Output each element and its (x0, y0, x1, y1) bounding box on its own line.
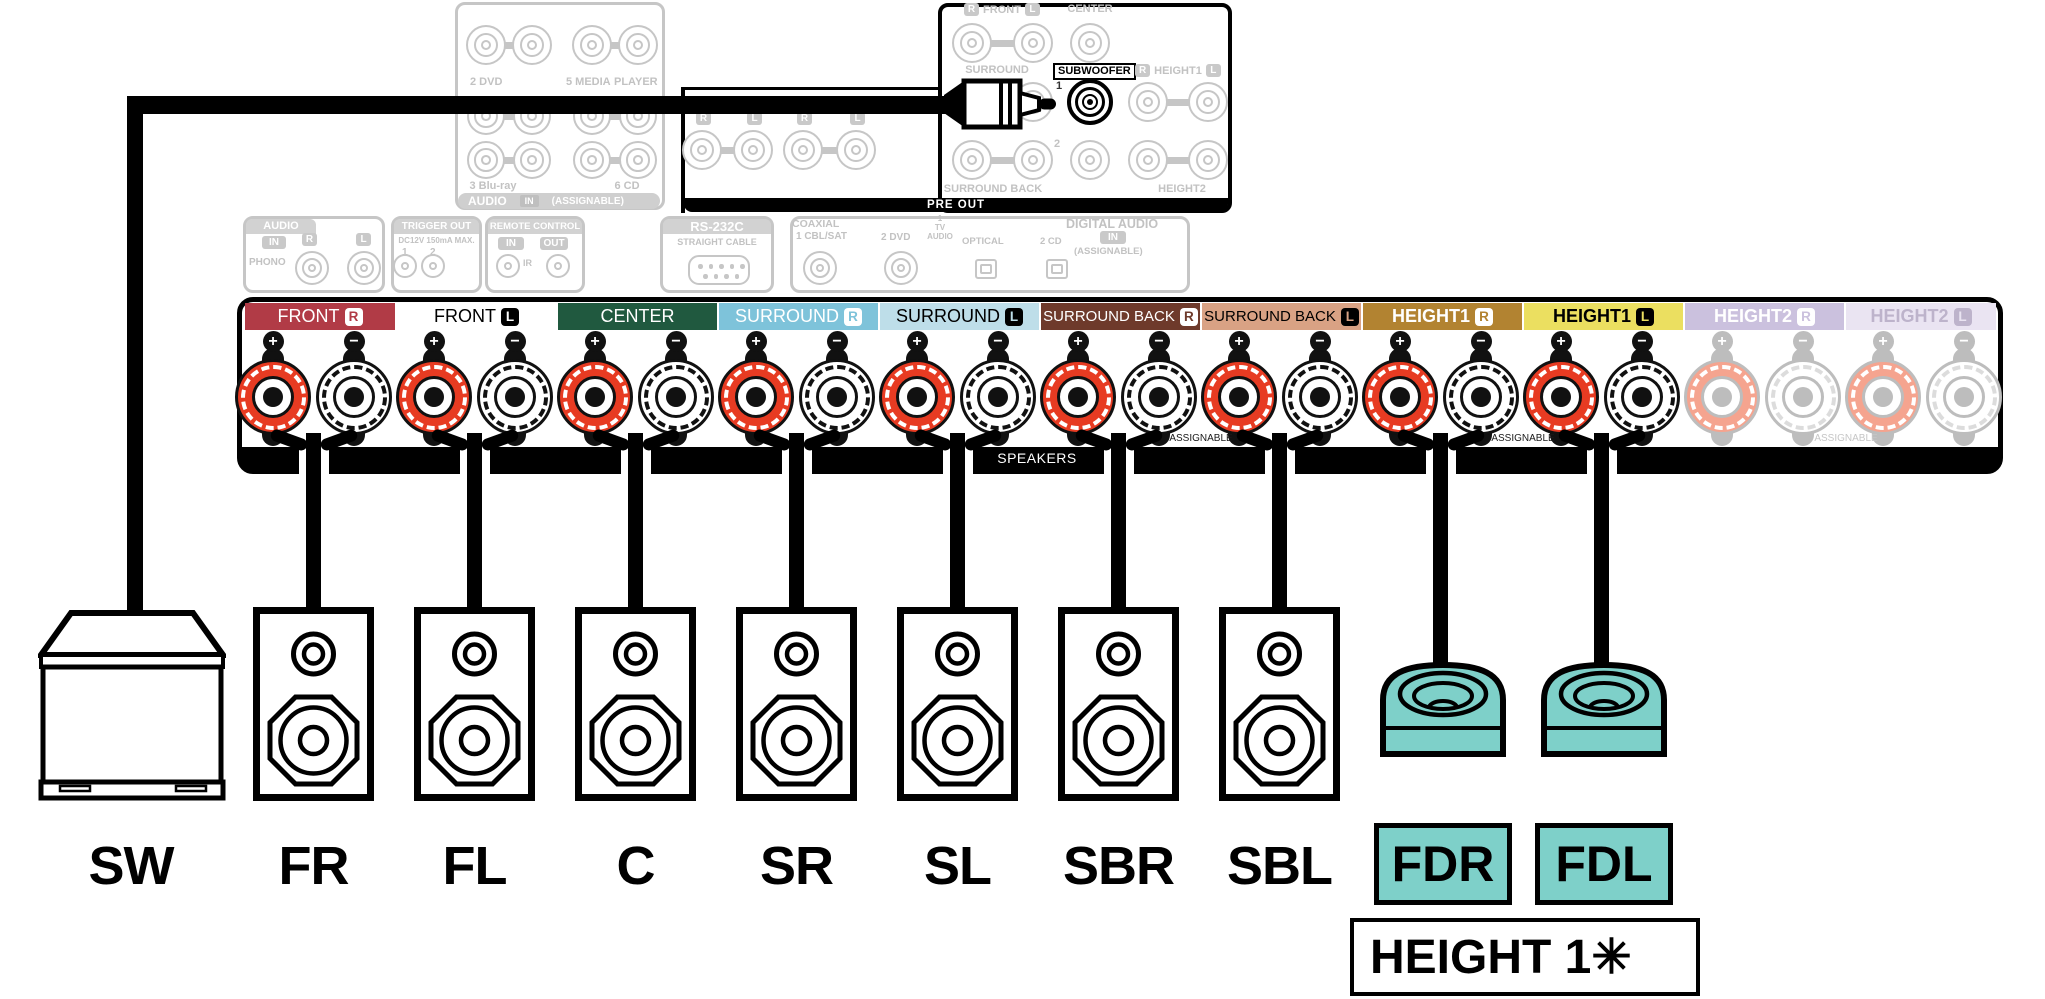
binding-post-negative[interactable] (960, 359, 1036, 435)
binding-post-positive[interactable] (235, 359, 311, 435)
rs232c-title: RS-232C (663, 219, 771, 234)
jack-ring (401, 262, 409, 270)
digital-assignable-label: (ASSIGNABLE) (1074, 246, 1143, 257)
binding-post-positive[interactable] (1201, 359, 1277, 435)
center-label: CENTER (1067, 3, 1112, 15)
right-channel-badge: R (302, 233, 317, 246)
speaker-wiring-diagram: R 1 CBL/SAT L R 4 GAME L 2 DVD 5 MEDIA P… (0, 0, 2045, 999)
dsub-pin (703, 274, 708, 279)
dsub-pin (735, 274, 740, 279)
jack-ring (633, 155, 643, 165)
channel-label-bar: CENTER (558, 303, 717, 330)
polarity-symbol: − (1793, 331, 1814, 352)
channel-label-bar: FRONTR (245, 303, 395, 330)
subwoofer-speaker-icon (38, 610, 226, 801)
input-label-bluray: 3 Blu-ray (458, 180, 528, 192)
jack-ring (527, 155, 537, 165)
rca-jack-faded (1013, 140, 1053, 180)
channel-label-bar: FRONTL (397, 303, 556, 330)
speaker-label: C (556, 835, 716, 897)
rca-jack-faded (836, 130, 876, 170)
rca-jack-faded (466, 25, 506, 65)
post-center (1793, 387, 1813, 407)
front-label: FRONT (983, 4, 1021, 16)
preout-height1-label: R HEIGHT1 L (1118, 64, 1238, 77)
subwoofer-1-label: 1 (1056, 80, 1062, 92)
height2-label: HEIGHT2 (1158, 183, 1206, 195)
jack-ring (554, 262, 562, 270)
speaker-cable (306, 433, 321, 612)
bookshelf-speaker-icon (414, 607, 535, 801)
remote-in-badge: IN (498, 237, 524, 250)
audio-in-assignable-bar: AUDIO IN (ASSIGNABLE) (458, 193, 660, 209)
binding-post-negative[interactable] (799, 359, 875, 435)
rca-jack-faded (1128, 140, 1168, 180)
dolby-height-speaker-icon (1379, 660, 1507, 758)
channel-name: SURROUND (896, 306, 1000, 327)
channel-side-badge: R (345, 308, 363, 326)
preout-surround-back-label: SURROUND BACK (943, 183, 1043, 195)
polarity-symbol: + (585, 331, 606, 352)
remote-control-panel: REMOTE CONTROL IN OUT (485, 216, 585, 293)
channel-name: FRONT (434, 306, 496, 327)
channel-side-badge: L (1636, 308, 1654, 326)
post-center (1229, 387, 1249, 407)
mini-jack-faded (393, 254, 417, 278)
post-center (988, 387, 1008, 407)
speaker-cable (628, 433, 643, 612)
channel-side-badge: L (1954, 308, 1972, 326)
polarity-symbol: − (1149, 331, 1170, 352)
rca-jack-faded (619, 141, 657, 179)
binding-post-positive[interactable] (1362, 359, 1438, 435)
channel-label-bar: HEIGHT1R (1363, 303, 1522, 330)
rca-jack-faded (952, 23, 992, 63)
polarity-symbol: − (827, 331, 848, 352)
post-center (1390, 387, 1410, 407)
left-channel-badge: L (356, 233, 371, 246)
binding-post-negative[interactable] (1443, 359, 1519, 435)
polarity-symbol: − (988, 331, 1009, 352)
speaker-tag-label: FDR (1374, 823, 1512, 905)
input-label-cd: 6 CD (592, 180, 662, 192)
dolby-height-speaker-icon (1540, 660, 1668, 758)
rca-jack-faded (513, 141, 551, 179)
digital-audio-label: DIGITAL AUDIO (1066, 217, 1158, 231)
polarity-symbol: − (1471, 331, 1492, 352)
speaker-label: SL (878, 835, 1038, 897)
channel-label-bar: SURROUND BACKL (1202, 303, 1361, 330)
ir-label: IR (523, 258, 532, 268)
polarity-symbol: + (1390, 331, 1411, 352)
assignable-label: (ASSIGNABLE) (552, 196, 624, 207)
speaker-cable (789, 433, 804, 612)
binding-post-negative[interactable] (316, 359, 392, 435)
post-center (344, 387, 364, 407)
polarity-symbol: + (1229, 331, 1250, 352)
speaker-label: FR (234, 835, 394, 897)
rca-jack-faded (803, 251, 837, 285)
post-center (827, 387, 847, 407)
height1-label: HEIGHT1 (1154, 65, 1202, 77)
digital-in-badge: IN (1100, 231, 1126, 244)
post-center (424, 387, 444, 407)
tv-num: 1 (922, 214, 958, 223)
rca-jack-faded (952, 140, 992, 180)
bookshelf-speaker-icon (253, 607, 374, 801)
mini-jack-faded (496, 254, 520, 278)
channel-label-bar: SURROUNDL (880, 303, 1039, 330)
surround-back-label: SURROUND BACK (944, 183, 1042, 195)
rca-jack-faded (295, 251, 329, 285)
surround-label: SURROUND (965, 64, 1029, 76)
channel-name: SURROUND BACK (1204, 308, 1336, 325)
polarity-symbol: − (344, 331, 365, 352)
speaker-cable (950, 433, 965, 612)
bookshelf-speaker-icon (736, 607, 857, 801)
rca-jack-faded (1188, 140, 1228, 180)
binding-post-positive[interactable] (1040, 359, 1116, 435)
post-center (1551, 387, 1571, 407)
jack-ring (504, 262, 512, 270)
post-center (1712, 387, 1732, 407)
rca-jack-faded (1070, 140, 1110, 180)
channel-label-bar: SURROUND BACKR (1041, 303, 1200, 330)
dsub-pin (740, 264, 745, 269)
subwoofer-pre-out-jack[interactable] (1067, 79, 1113, 125)
jack-ring (481, 155, 491, 165)
post-center (505, 387, 525, 407)
rs232c-panel: RS-232C STRAIGHT CABLE (660, 216, 774, 293)
channel-label-bar: SURROUNDR (719, 303, 878, 330)
rs232c-port (688, 255, 750, 285)
trigger-out-title: TRIGGER OUT (394, 219, 479, 234)
channel-label-bar: HEIGHT1L (1524, 303, 1683, 330)
tv-audio-label: 1 TV AUDIO (922, 214, 958, 241)
input-label-media: 5 MEDIA (566, 76, 611, 88)
assignable-label: ASSIGNABLE (1801, 433, 1891, 444)
jack-center (1087, 99, 1093, 105)
speaker-cable (1433, 433, 1448, 664)
rca-jack-faded (512, 25, 552, 65)
rca-jack-faded (1128, 82, 1168, 122)
mini-jack-faded (546, 254, 570, 278)
phono-panel-title: AUDIO (246, 219, 316, 234)
assignable-label: ASSIGNABLE (1478, 433, 1568, 444)
post-center (585, 387, 605, 407)
right-channel-badge: R (964, 3, 979, 16)
speaker-cable (467, 433, 482, 612)
coax-cbl-sat-label: 1 CBL/SAT (796, 231, 847, 242)
bookshelf-speaker-icon (575, 607, 696, 801)
remote-control-title: REMOTE CONTROL (488, 219, 582, 234)
jack-pair-connector (990, 40, 1015, 47)
channel-side-badge: R (1475, 308, 1493, 326)
speaker-label: FL (395, 835, 555, 897)
channel-label-bar: HEIGHT2R (1685, 303, 1844, 330)
trigger-spec: DC12V 150mA MAX. (394, 236, 479, 245)
subwoofer-2-label: 2 (1054, 138, 1060, 150)
post-center (1068, 387, 1088, 407)
speaker-label: SW (51, 835, 211, 897)
preout-height2-label: HEIGHT2 (1132, 183, 1232, 195)
rca-jack-faded (1188, 82, 1228, 122)
preout-surround-label: SURROUND (947, 64, 1047, 76)
right-channel-badge: R (1135, 64, 1150, 77)
in-badge: IN (262, 236, 286, 249)
rca-jack-faded (733, 130, 773, 170)
channel-side-badge: R (844, 308, 862, 326)
optical-cd-label: 2 CD (1040, 236, 1062, 247)
channel-name: HEIGHT2 (1714, 306, 1792, 327)
binding-post-negative[interactable] (1765, 359, 1841, 435)
rca-jack-faded (884, 251, 918, 285)
polarity-symbol: + (424, 331, 445, 352)
rca-jack-faded (573, 141, 611, 179)
dsub-pin (698, 264, 703, 269)
polarity-symbol: + (746, 331, 767, 352)
channel-side-badge: L (501, 308, 519, 326)
post-center (746, 387, 766, 407)
binding-post-positive[interactable] (1845, 359, 1921, 435)
post-center (1632, 387, 1652, 407)
rca-jack-faded (1013, 23, 1053, 63)
channel-name: SURROUND (735, 306, 839, 327)
channel-name: HEIGHT2 (1870, 306, 1948, 327)
dsub-pin (709, 264, 714, 269)
speaker-cable (1111, 433, 1126, 612)
rca-jack-faded (682, 130, 722, 170)
tv: TV (922, 223, 958, 232)
bookshelf-speaker-icon (1058, 607, 1179, 801)
polarity-symbol: + (1873, 331, 1894, 352)
tv-audio: AUDIO (922, 232, 958, 241)
coaxial-label: COAXIAL (792, 218, 839, 230)
speaker-label: SBR (1039, 835, 1199, 897)
height1-note: HEIGHT 1✳ (1350, 918, 1700, 996)
polarity-symbol: + (1551, 331, 1572, 352)
channel-name: SURROUND BACK (1043, 308, 1175, 325)
post-center (1873, 387, 1893, 407)
binding-post-positive[interactable] (1684, 359, 1760, 435)
polarity-symbol: + (1712, 331, 1733, 352)
dsub-pin (724, 274, 729, 279)
left-channel-badge: L (1206, 64, 1221, 77)
jack-pair-connector (1166, 99, 1190, 106)
binding-post-positive[interactable] (396, 359, 472, 435)
polarity-symbol: + (907, 331, 928, 352)
binding-post-negative[interactable] (477, 359, 553, 435)
channel-name: FRONT (278, 306, 340, 327)
assignable-label: ASSIGNABLE (1156, 433, 1246, 444)
post-center (666, 387, 686, 407)
channel-side-badge: R (1180, 308, 1198, 326)
channel-side-badge: R (1797, 308, 1815, 326)
rca-jack-faded (572, 25, 612, 65)
input-label-dvd: 2 DVD (470, 76, 502, 88)
bookshelf-speaker-icon (897, 607, 1018, 801)
phono-label: PHONO (249, 257, 286, 268)
dsub-pin (719, 264, 724, 269)
jack-ring (587, 155, 597, 165)
audio-label: AUDIO (468, 194, 507, 208)
pre-out-bar: PRE OUT (684, 198, 1228, 212)
optical-label: OPTICAL (962, 236, 1004, 247)
dsub-pin (714, 274, 719, 279)
rca-jack-faded (618, 25, 658, 65)
post-center (1310, 387, 1330, 407)
straight-cable-label: STRAIGHT CABLE (663, 237, 771, 247)
channel-label-bar: HEIGHT2L (1846, 303, 1996, 330)
polarity-symbol: − (1310, 331, 1331, 352)
subwoofer-cable-horizontal (127, 96, 950, 114)
optical-port (1046, 259, 1068, 279)
binding-post-negative[interactable] (1121, 359, 1197, 435)
channel-side-badge: L (1341, 308, 1359, 326)
remote-out-badge: OUT (540, 237, 568, 250)
pre-out-bar-label: PRE OUT (927, 199, 985, 211)
channel-name: HEIGHT1 (1392, 306, 1470, 327)
mini-jack-faded (421, 254, 445, 278)
polarity-symbol: − (666, 331, 687, 352)
channel-side-badge: L (1005, 308, 1023, 326)
input-label-player: PLAYER (614, 76, 658, 88)
rca-plug-icon[interactable] (944, 78, 1056, 130)
post-center (1954, 387, 1974, 407)
post-center (907, 387, 927, 407)
post-center (1471, 387, 1491, 407)
binding-post-positive[interactable] (1523, 359, 1599, 435)
rca-jack-faded (783, 130, 823, 170)
speaker-cable (1272, 433, 1287, 612)
rca-jack-faded (467, 141, 505, 179)
polarity-symbol: − (505, 331, 526, 352)
rca-jack-faded (347, 251, 381, 285)
polarity-symbol: + (1068, 331, 1089, 352)
channel-name: CENTER (600, 306, 674, 327)
rca-jack-faded (1070, 23, 1110, 63)
jack-pair-connector (990, 157, 1015, 164)
jack-pair-connector (1166, 157, 1190, 164)
post-center (263, 387, 283, 407)
polarity-symbol: + (263, 331, 284, 352)
binding-post-negative[interactable] (1604, 359, 1680, 435)
left-channel-badge: L (1025, 3, 1040, 16)
coax-dvd-label: 2 DVD (881, 232, 910, 243)
polarity-symbol: − (1954, 331, 1975, 352)
speaker-cable (1594, 433, 1609, 664)
polarity-symbol: − (1632, 331, 1653, 352)
bookshelf-speaker-icon (1219, 607, 1340, 801)
optical-port (975, 259, 997, 279)
in-badge: IN (520, 195, 539, 207)
speaker-tag-label: FDL (1535, 823, 1673, 905)
binding-post-negative[interactable] (638, 359, 714, 435)
binding-post-negative[interactable] (1282, 359, 1358, 435)
binding-post-positive[interactable] (557, 359, 633, 435)
jack-ring (429, 262, 437, 270)
subwoofer-cable-vertical (127, 96, 143, 613)
speaker-label: SBL (1200, 835, 1360, 897)
speaker-label: SR (717, 835, 877, 897)
binding-post-positive[interactable] (718, 359, 794, 435)
dsub-pin (730, 264, 735, 269)
binding-post-negative[interactable] (1926, 359, 2002, 435)
channel-name: HEIGHT1 (1553, 306, 1631, 327)
post-center (1149, 387, 1169, 407)
preout-center-label: CENTER (1040, 3, 1140, 15)
speakers-bar-label: SPEAKERS (967, 450, 1107, 466)
binding-post-positive[interactable] (879, 359, 955, 435)
